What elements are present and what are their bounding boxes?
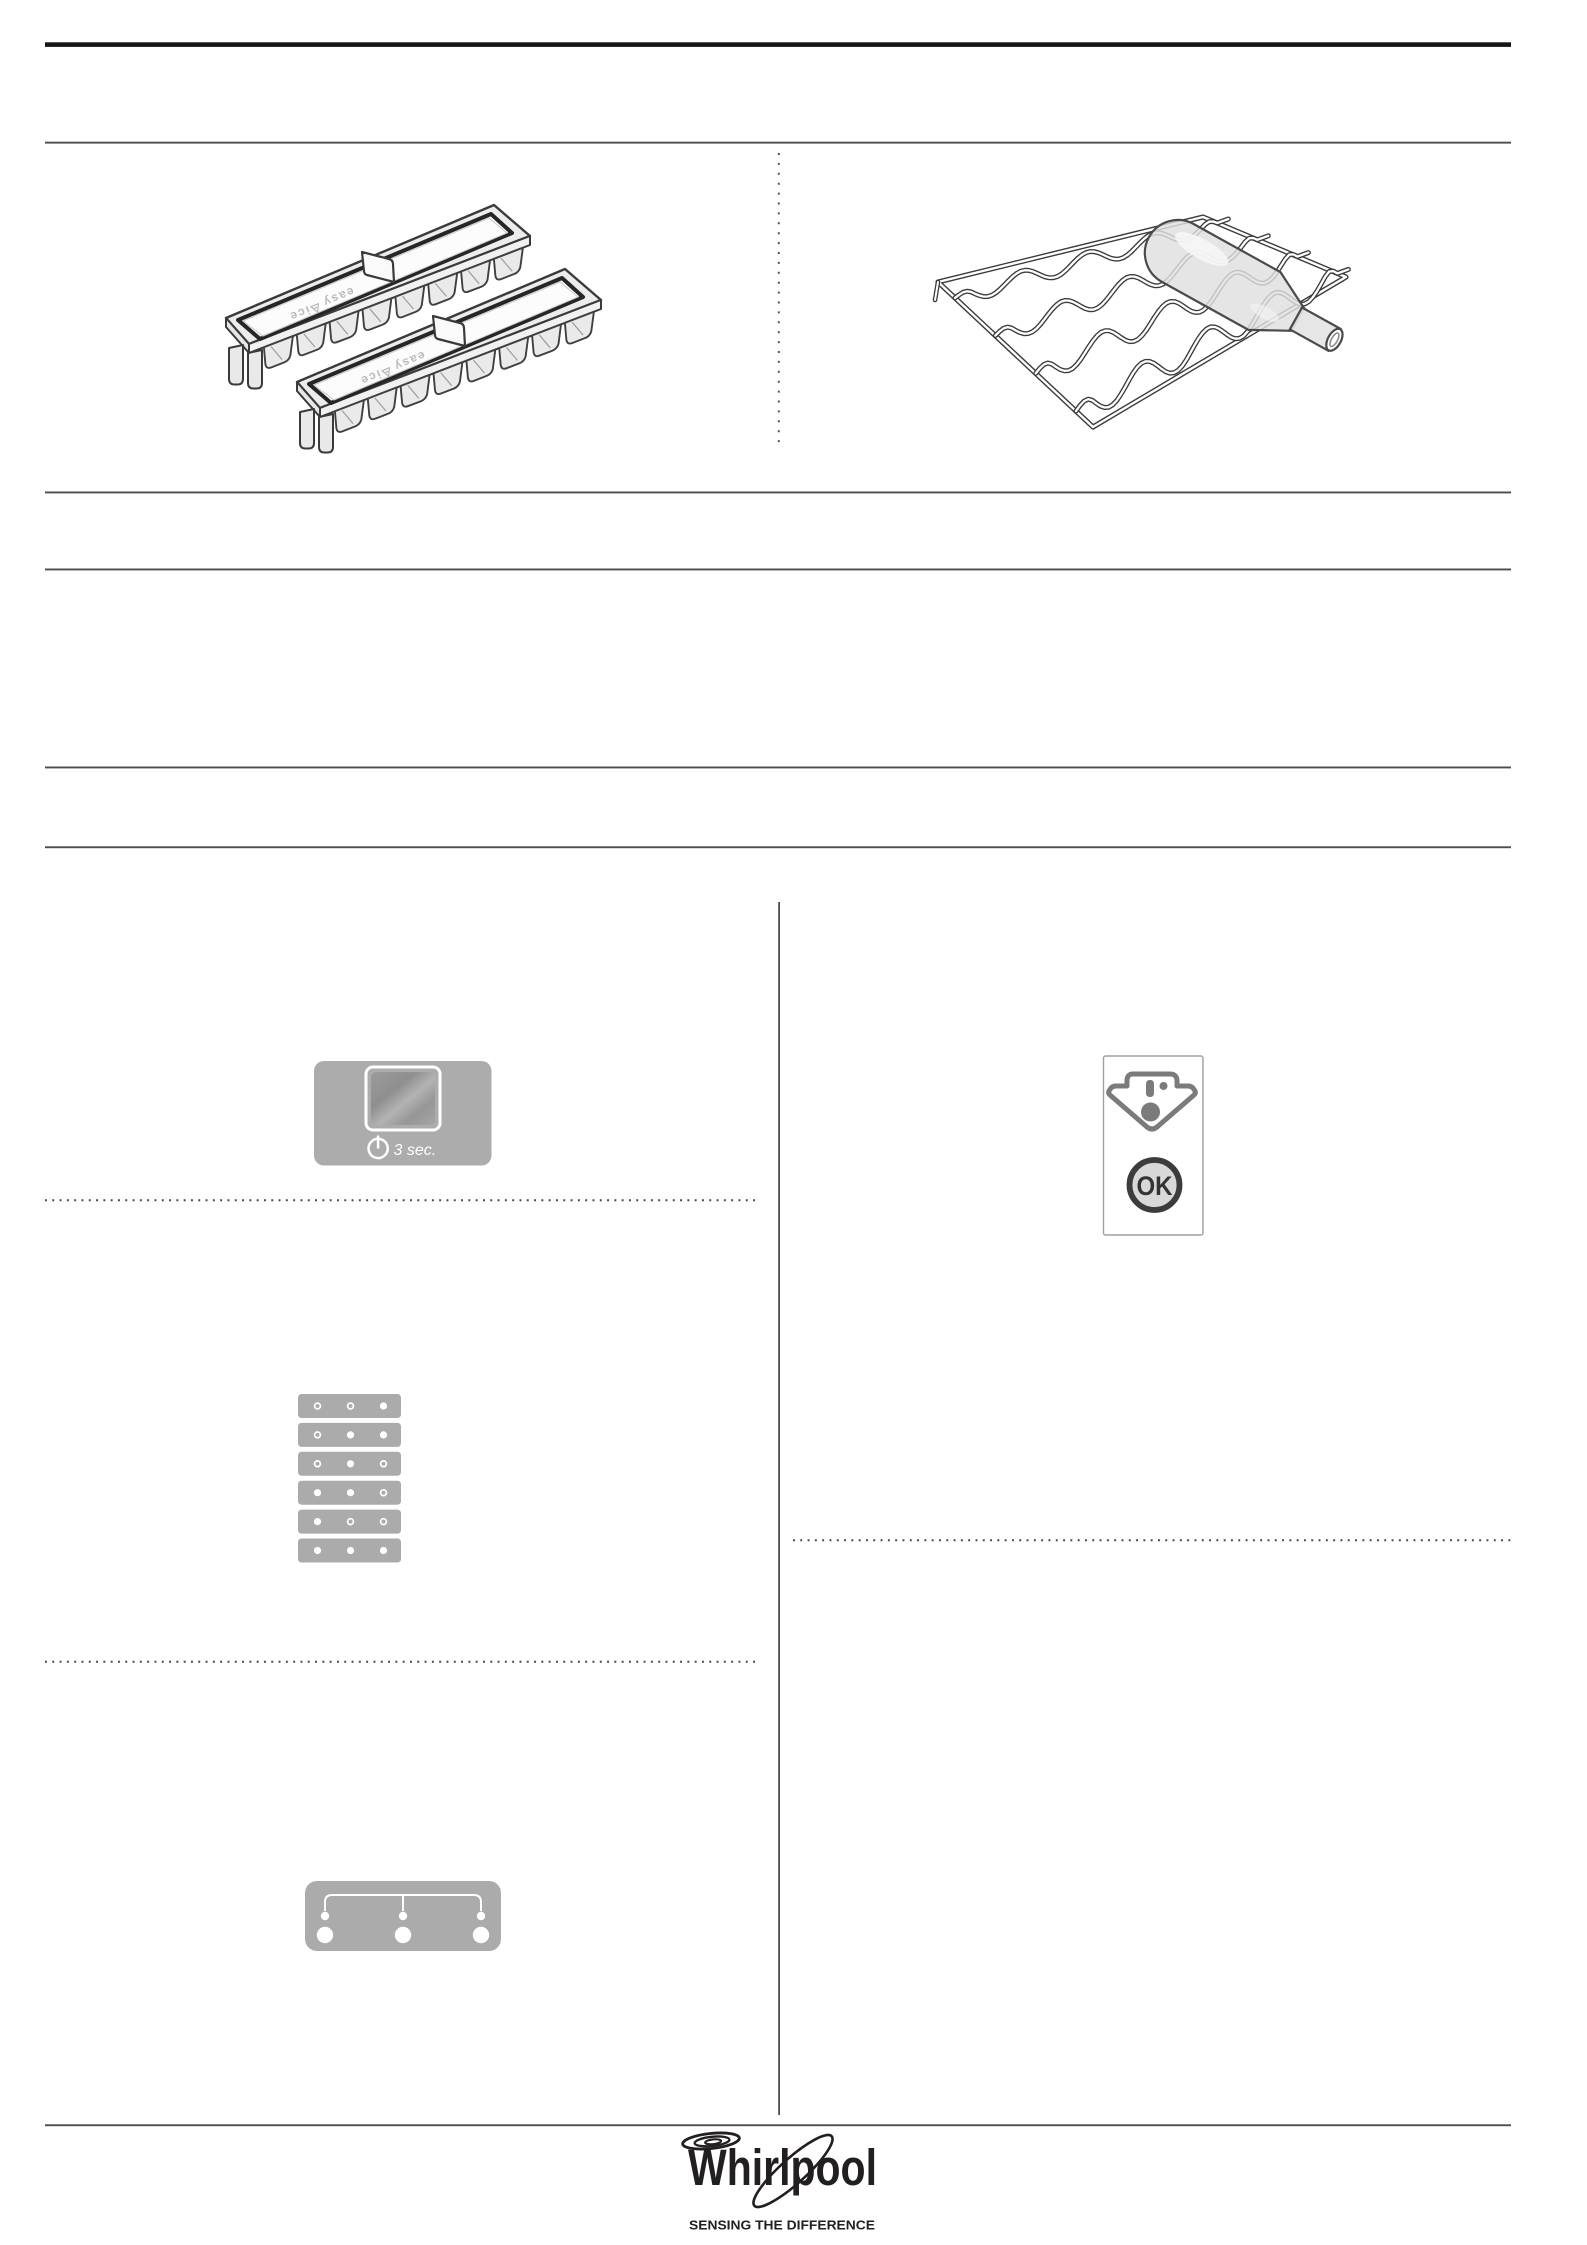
- svg-text:SENSING THE DIFFERENCE: SENSING THE DIFFERENCE: [689, 2219, 875, 2233]
- svg-text:Whirlpool: Whirlpool: [688, 2139, 877, 2196]
- svg-text:OK: OK: [1137, 1171, 1173, 1201]
- svg-text:3 sec.: 3 sec.: [394, 1142, 437, 1159]
